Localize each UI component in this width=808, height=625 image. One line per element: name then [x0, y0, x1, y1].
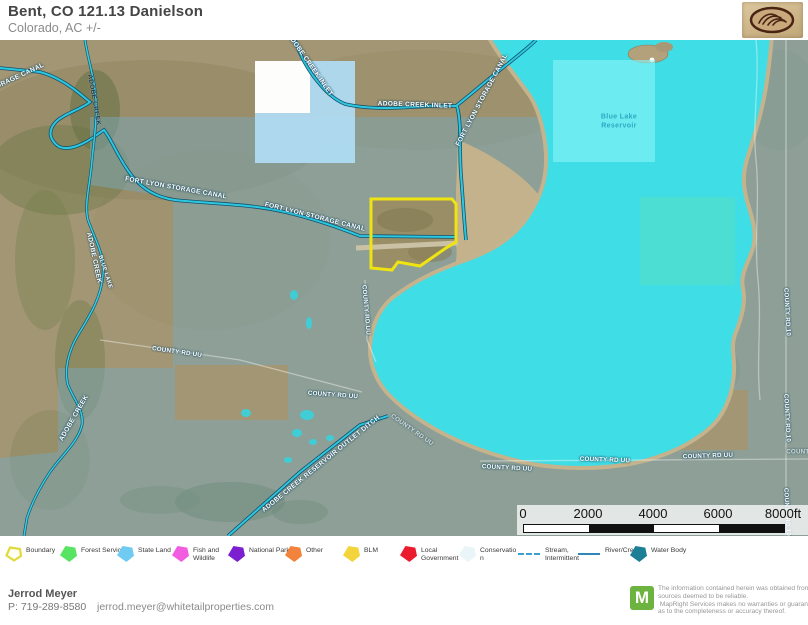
- legend-item: Other: [285, 546, 302, 580]
- legend-swatch-conservation: [459, 546, 476, 562]
- scale-tick: 6000: [704, 506, 733, 521]
- agent-phone: P: 719-289-8580: [8, 601, 86, 613]
- legend-swatch-stream-intermittent: [518, 553, 540, 555]
- legend-item: Stream, Intermittent: [518, 546, 540, 580]
- page-subtitle: Colorado, AC +/-: [8, 21, 101, 35]
- footer: Jerrod Meyer P: 719-289-8580 jerrod.meye…: [0, 580, 808, 625]
- agent-email: jerrod.meyer@whitetailproperties.com: [97, 601, 274, 613]
- map-flyer-page: Bent, CO 121.13 Danielson Colorado, AC +…: [0, 0, 808, 625]
- legend-swatch-river-creek: [578, 553, 600, 555]
- disclaimer-line: sources deemed to be reliable.: [658, 593, 806, 601]
- scale-tick: 2000: [574, 506, 603, 521]
- scale-tick: 8000ft: [765, 506, 801, 521]
- legend-swatch-national-park: [228, 546, 245, 562]
- legend-item: National Park: [228, 546, 245, 580]
- legend-item: Local Government: [400, 546, 417, 580]
- legend-label: Water Body: [651, 547, 697, 555]
- disclaimer-line: MapRight Services makes no warranties or…: [658, 601, 806, 609]
- map-disclaimer: The information contained herein was obt…: [658, 585, 806, 616]
- page-title: Bent, CO 121.13 Danielson: [8, 3, 203, 20]
- legend-item: Water Body: [630, 546, 647, 580]
- scale-tick: 0: [519, 506, 526, 521]
- legend-item: River/Creek: [578, 546, 600, 580]
- legend-swatch-forest-service: [60, 546, 77, 562]
- agent-name: Jerrod Meyer: [8, 588, 77, 600]
- legend-swatch-water-body: [630, 546, 647, 562]
- scale-bar-segments: [523, 524, 785, 533]
- mapright-logo-icon: M: [630, 586, 654, 610]
- disclaimer-line: The information contained herein was obt…: [658, 585, 806, 593]
- legend-item: Fish and Wildlife: [172, 546, 189, 580]
- legend-swatch-other: [285, 546, 302, 562]
- map-canvas[interactable]: ORAGE CANALADOBE CREEKADOBE CREEK INLETA…: [0, 40, 808, 536]
- header: Bent, CO 121.13 Danielson Colorado, AC +…: [0, 0, 808, 40]
- whitetail-properties-logo-icon: [742, 2, 803, 38]
- legend-swatch-state-land: [117, 546, 134, 562]
- map-legend: BoundaryForest ServiceState LandFish and…: [0, 536, 808, 580]
- legend-item: Conservation: [459, 546, 476, 580]
- legend-label: Conservation: [480, 547, 520, 563]
- legend-swatch-fish-and-wildlife: [172, 546, 189, 562]
- legend-swatch-local-government: [400, 546, 417, 562]
- scale-tick: 4000: [639, 506, 668, 521]
- legend-item: State Land: [117, 546, 134, 580]
- legend-item: BLM: [343, 546, 360, 580]
- map-scale-bar: 02000400060008000ft: [517, 505, 808, 535]
- map-imagery: [0, 40, 808, 536]
- legend-item: Forest Service: [60, 546, 77, 580]
- disclaimer-line: as to the completeness or accuracy there…: [658, 608, 806, 616]
- legend-swatch-boundary: [5, 546, 23, 567]
- legend-swatch-blm: [343, 546, 360, 562]
- legend-item: Boundary: [5, 546, 23, 580]
